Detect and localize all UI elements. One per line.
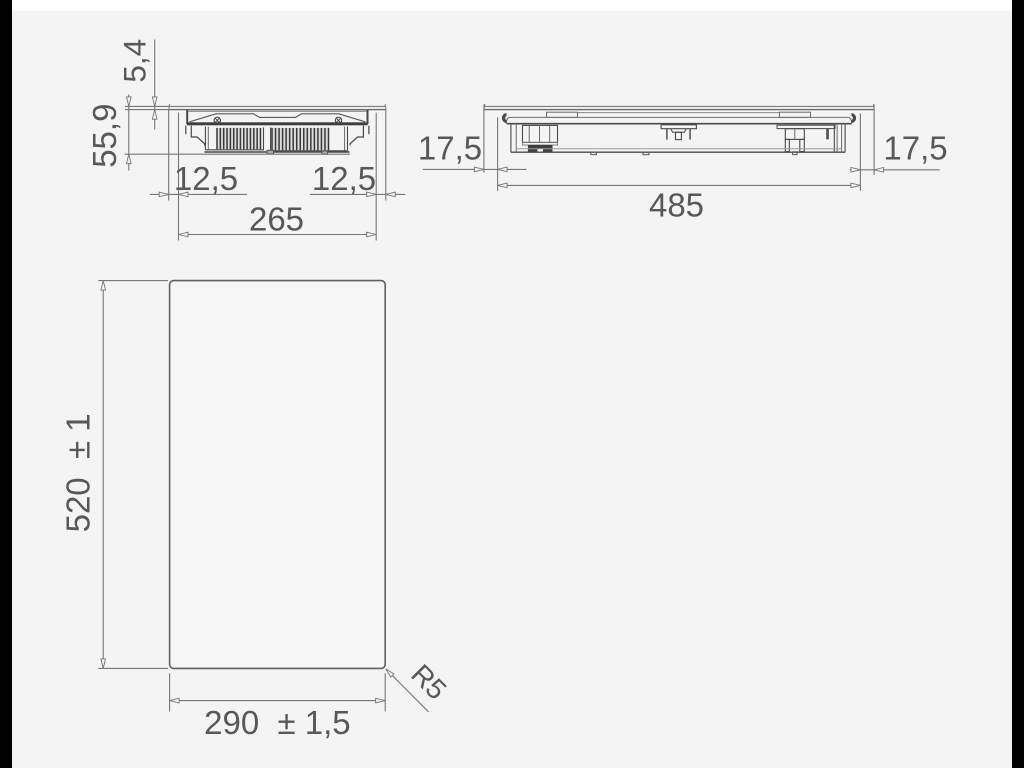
svg-text:265: 265 — [249, 200, 304, 237]
svg-text:17,5: 17,5 — [883, 130, 947, 167]
svg-text:12,5: 12,5 — [174, 160, 238, 197]
svg-text:17,5: 17,5 — [418, 130, 482, 167]
svg-text:520 ± 1: 520 ± 1 — [59, 413, 96, 532]
svg-text:55,9: 55,9 — [86, 104, 123, 168]
svg-text:12,5: 12,5 — [312, 160, 376, 197]
svg-text:5,4: 5,4 — [117, 39, 153, 83]
svg-text:290 ± 1,5: 290 ± 1,5 — [204, 704, 351, 741]
svg-text:485: 485 — [649, 187, 704, 224]
